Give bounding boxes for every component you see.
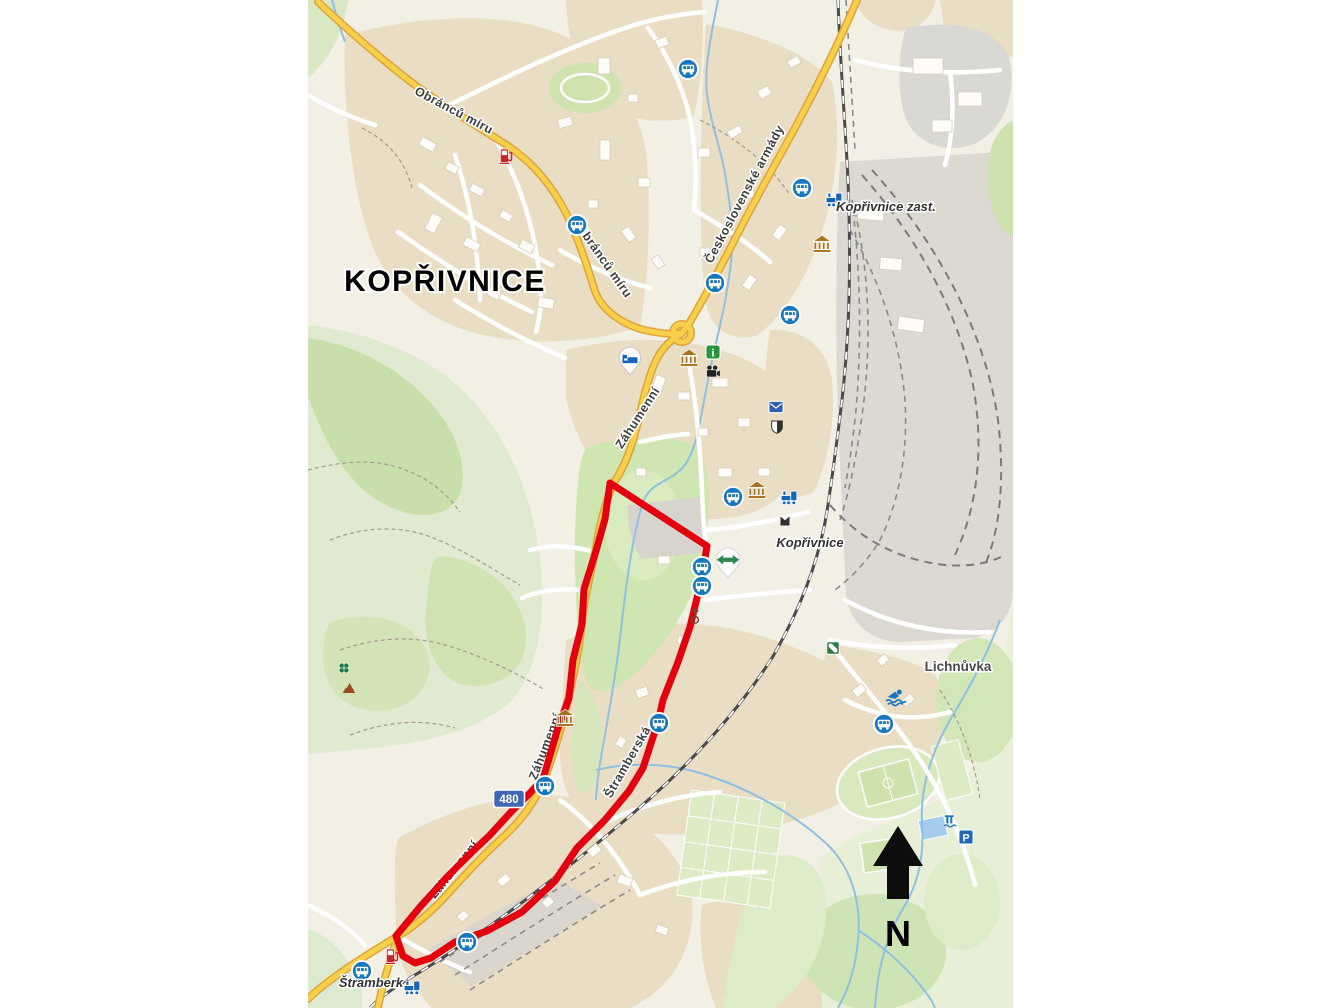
north-label: N	[885, 913, 911, 954]
place-label: Lichnůvka	[925, 659, 992, 674]
bus-stop-icon	[723, 487, 743, 507]
clover-icon	[339, 663, 349, 673]
bus-stop-icon	[535, 776, 555, 796]
bus-stop-icon	[649, 713, 669, 733]
bus-stop-icon	[457, 932, 477, 952]
info-centre-icon	[706, 345, 720, 359]
map-figure: i	[308, 0, 1013, 1008]
bus-stop-icon	[792, 178, 812, 198]
station-building-icon	[781, 517, 790, 526]
map-svg: i	[308, 0, 1013, 1008]
bus-stop-icon	[705, 273, 725, 293]
station-label: Štramberk	[339, 975, 404, 990]
map-slide: i	[0, 0, 1344, 1008]
station-label: Kopřivnice	[776, 535, 843, 550]
parking-icon	[959, 830, 973, 844]
route-shield-number: 480	[499, 794, 518, 806]
bus-stop-icon	[874, 714, 894, 734]
bus-stop-icon	[678, 59, 698, 79]
garden-colony	[677, 790, 785, 908]
route-shield: 480	[494, 790, 525, 808]
bus-stop-icon	[567, 215, 587, 235]
bus-stop-icon	[780, 305, 800, 325]
city-label: KOPŘIVNICE	[344, 264, 546, 298]
bus-stop-icon	[692, 557, 712, 577]
sports-ground-icon	[827, 642, 840, 655]
post-office-icon	[769, 401, 783, 412]
station-label: Kopřivnice zast.	[836, 199, 936, 214]
bus-stop-icon	[692, 576, 712, 596]
memorial-icon	[772, 421, 783, 433]
